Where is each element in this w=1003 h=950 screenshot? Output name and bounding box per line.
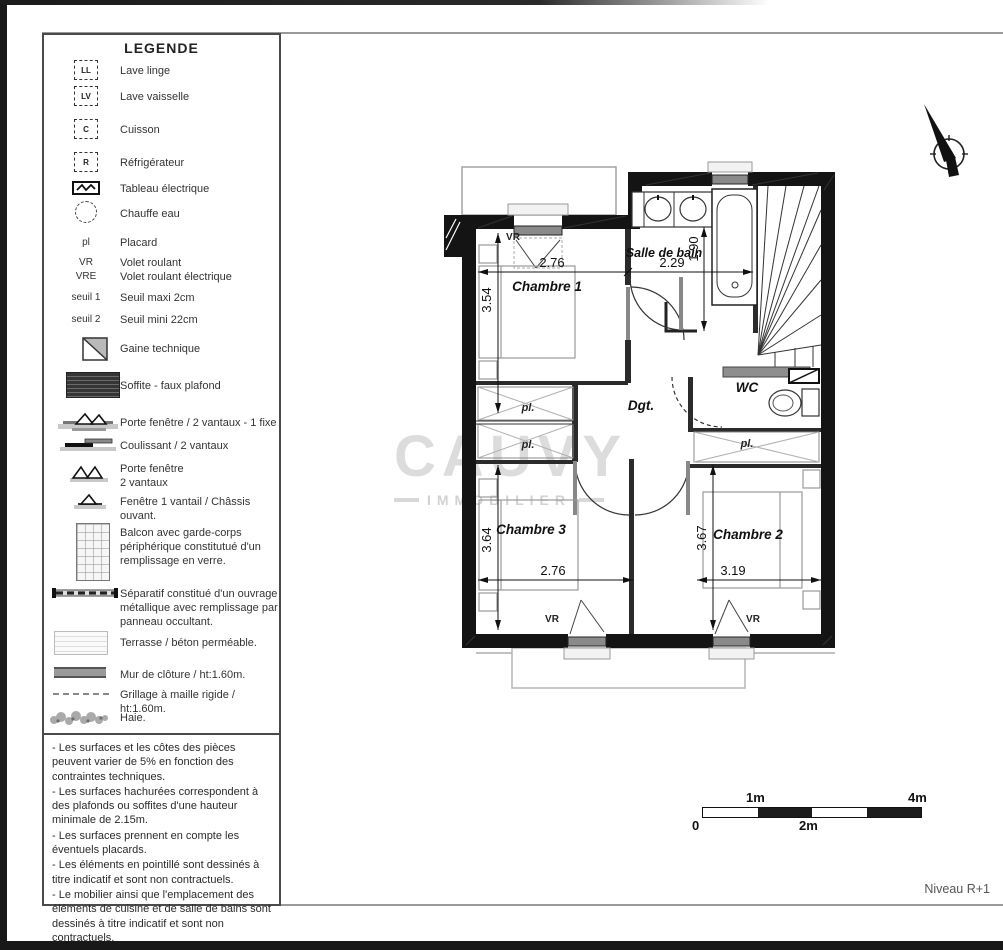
sliding-door-icon xyxy=(60,438,116,452)
closet-label: pl. xyxy=(521,439,535,451)
washing-machine-icon: LL xyxy=(74,60,98,80)
scale-bar-segments xyxy=(702,807,922,818)
room-label-chambre3: Chambre 3 xyxy=(496,522,566,537)
scale-label-4m: 4m xyxy=(908,790,927,805)
page-edge-top xyxy=(0,0,770,5)
technical-duct-icon xyxy=(82,337,108,361)
shutter-label: VR xyxy=(545,614,560,625)
note-line: - Les éléments en pointillé sont dessiné… xyxy=(52,858,271,887)
refrigerator-icon: R xyxy=(74,152,98,172)
dim-chambre2-height: 3.67 xyxy=(694,525,709,550)
water-heater-icon xyxy=(75,201,97,223)
scale-bar: 0 1m 2m 4m xyxy=(690,790,938,838)
note-line: - Les surfaces et les côtes des pièces p… xyxy=(52,741,271,784)
cooktop-icon: C xyxy=(74,119,98,139)
floor-plan: 2.76 2.29 3.54 1.90 2.76 3.19 3.64 3.67 … xyxy=(440,95,1003,730)
dim-chambre1-width: 2.76 xyxy=(539,255,564,270)
dishwasher-icon: LV xyxy=(74,86,98,106)
staircase xyxy=(758,186,821,367)
electrical-panel-icon xyxy=(72,181,100,195)
notes-panel: - Les surfaces et les côtes des pièces p… xyxy=(42,735,281,906)
wc-door-swing-dashed xyxy=(672,377,722,427)
dim-chambre2-width: 3.19 xyxy=(720,563,745,578)
legend-title: LEGENDE xyxy=(44,40,279,56)
floor-plan-sheet: { "legend": { "title": "LEGENDE", "items… xyxy=(0,0,1003,950)
sink-right xyxy=(680,197,706,221)
scale-label-1m: 1m xyxy=(746,790,765,805)
dim-chambre3-height: 3.64 xyxy=(479,527,494,552)
hedge-icon xyxy=(48,709,110,729)
sink-left xyxy=(645,197,671,221)
shutter-label: VR xyxy=(506,232,521,243)
room-label-salle-de-bain: Salle de bain xyxy=(626,246,703,260)
balcony-grid-icon xyxy=(76,523,110,581)
room-label-chambre2: Chambre 2 xyxy=(713,527,783,542)
doors xyxy=(575,277,722,515)
window-1-leaf-icon xyxy=(74,493,106,511)
dim-chambre3-width: 2.76 xyxy=(540,563,565,578)
french-door-2-leaf-1-fixed-icon xyxy=(58,411,118,433)
page-edge-left xyxy=(0,0,7,950)
terrace-icon xyxy=(54,631,108,655)
toilet xyxy=(769,389,819,416)
metal-separator-icon xyxy=(52,588,118,598)
note-line: - Le mobilier ainsi que l'emplacement de… xyxy=(52,888,271,945)
closet-label: pl. xyxy=(740,438,754,450)
dim-chambre1-height: 3.54 xyxy=(479,287,494,312)
room-label-wc: WC xyxy=(736,380,759,395)
soffit-hatch-icon xyxy=(66,372,120,398)
closure-wall-icon xyxy=(54,667,106,678)
vent-grille xyxy=(789,369,819,383)
watermark-rule-left xyxy=(394,498,419,502)
note-line: - Les surfaces hachurées correspondent à… xyxy=(52,785,271,828)
french-door-2-leaf-icon xyxy=(70,463,108,485)
legend-panel: LEGENDE LL Lave linge LV Lave vaisselle … xyxy=(42,33,281,735)
shutter-label: VR xyxy=(746,614,761,625)
scale-label-0: 0 xyxy=(692,818,699,833)
closet-label: pl. xyxy=(521,402,535,414)
level-label: Niveau R+1 xyxy=(880,882,990,896)
scale-label-2m: 2m xyxy=(799,818,818,833)
rigid-mesh-fence-icon xyxy=(53,693,109,695)
room-label-chambre1: Chambre 1 xyxy=(512,279,582,294)
room-label-degagement: Dgt. xyxy=(628,398,654,413)
note-line: - Les surfaces prennent en compte les év… xyxy=(52,829,271,858)
